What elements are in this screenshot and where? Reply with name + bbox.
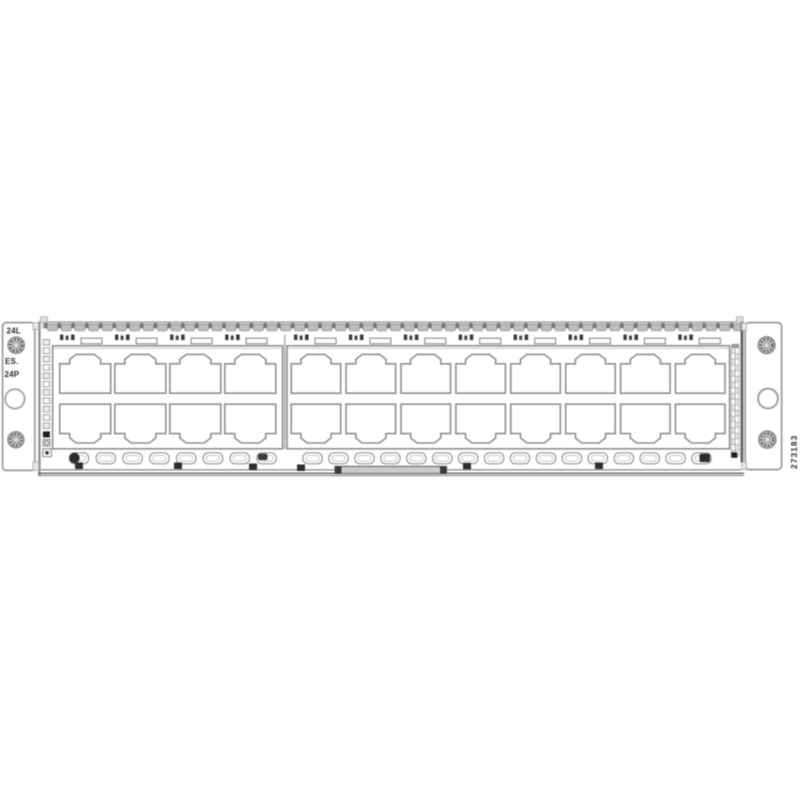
svg-text:24P: 24P — [5, 370, 20, 379]
svg-text:ES.: ES. — [5, 357, 19, 366]
svg-text:24L: 24L — [7, 327, 21, 336]
svg-text:273183: 273183 — [789, 435, 799, 469]
